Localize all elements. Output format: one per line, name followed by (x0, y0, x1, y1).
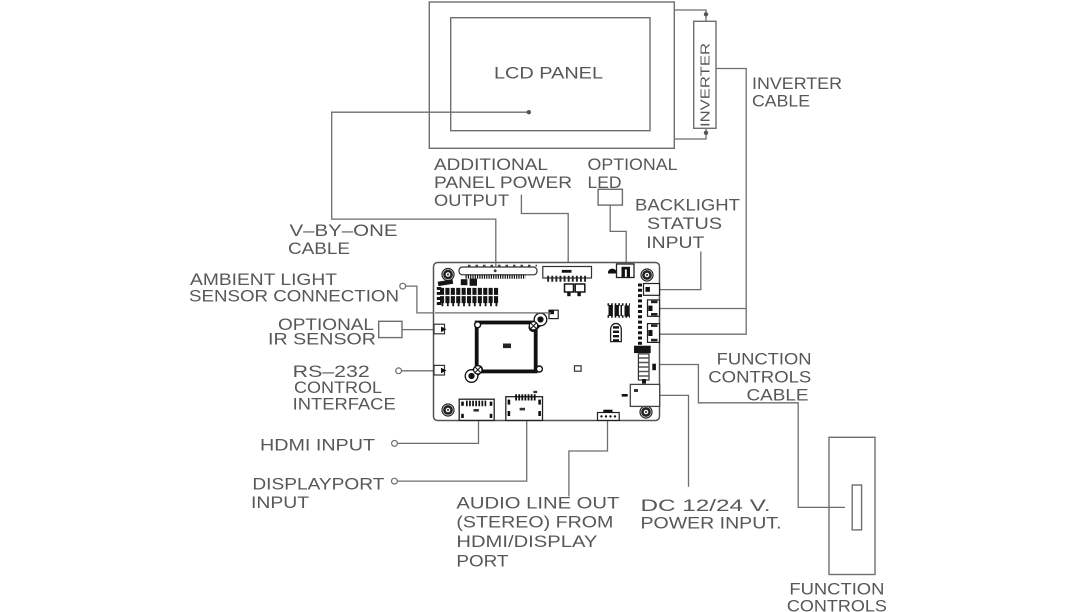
svg-text:OPTIONAL: OPTIONAL (588, 155, 678, 174)
svg-text:DISPLAYPORT: DISPLAYPORT (252, 475, 384, 494)
svg-text:V–BY–ONE: V–BY–ONE (290, 221, 398, 240)
svg-text:CONTROLS: CONTROLS (787, 597, 887, 612)
svg-text:AUDIO LINE OUT: AUDIO LINE OUT (456, 494, 619, 513)
svg-text:ADDITIONAL: ADDITIONAL (434, 155, 548, 174)
svg-text:CABLE: CABLE (288, 239, 350, 258)
svg-text:FUNCTION: FUNCTION (717, 350, 812, 369)
svg-text:INPUT: INPUT (646, 233, 704, 252)
svg-text:IR SENSOR: IR SENSOR (268, 330, 376, 349)
svg-text:PANEL POWER: PANEL POWER (434, 173, 572, 192)
svg-text:LCD PANEL: LCD PANEL (494, 63, 603, 82)
svg-text:DC 12/24 V.: DC 12/24 V. (641, 496, 771, 515)
svg-text:PORT: PORT (456, 552, 508, 571)
svg-text:INTERFACE: INTERFACE (293, 395, 396, 414)
svg-text:INVERTER: INVERTER (699, 43, 713, 127)
svg-text:CONTROLS: CONTROLS (708, 368, 811, 387)
svg-text:BACKLIGHT: BACKLIGHT (635, 196, 740, 215)
svg-text:CABLE: CABLE (752, 92, 810, 111)
svg-text:POWER INPUT.: POWER INPUT. (641, 514, 782, 533)
svg-text:SENSOR CONNECTION: SENSOR CONNECTION (189, 287, 399, 306)
svg-text:(STEREO) FROM: (STEREO) FROM (456, 513, 613, 532)
svg-text:INPUT: INPUT (251, 493, 309, 512)
svg-text:OUTPUT: OUTPUT (434, 191, 509, 210)
svg-text:STATUS: STATUS (647, 214, 722, 233)
svg-text:INVERTER: INVERTER (752, 74, 842, 93)
svg-text:CABLE: CABLE (747, 386, 809, 405)
svg-text:HDMI/DISPLAY: HDMI/DISPLAY (456, 532, 597, 551)
svg-text:HDMI INPUT: HDMI INPUT (260, 436, 375, 455)
